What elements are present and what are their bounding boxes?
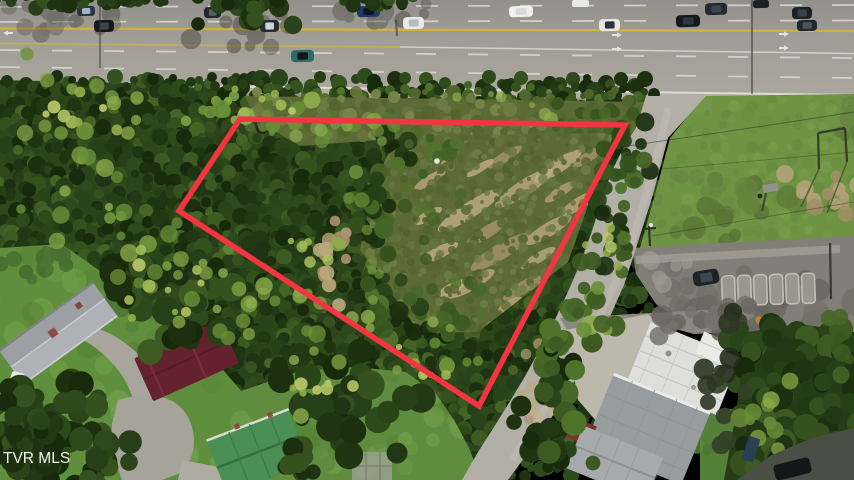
svg-text:TVR MLS: TVR MLS <box>3 450 70 467</box>
